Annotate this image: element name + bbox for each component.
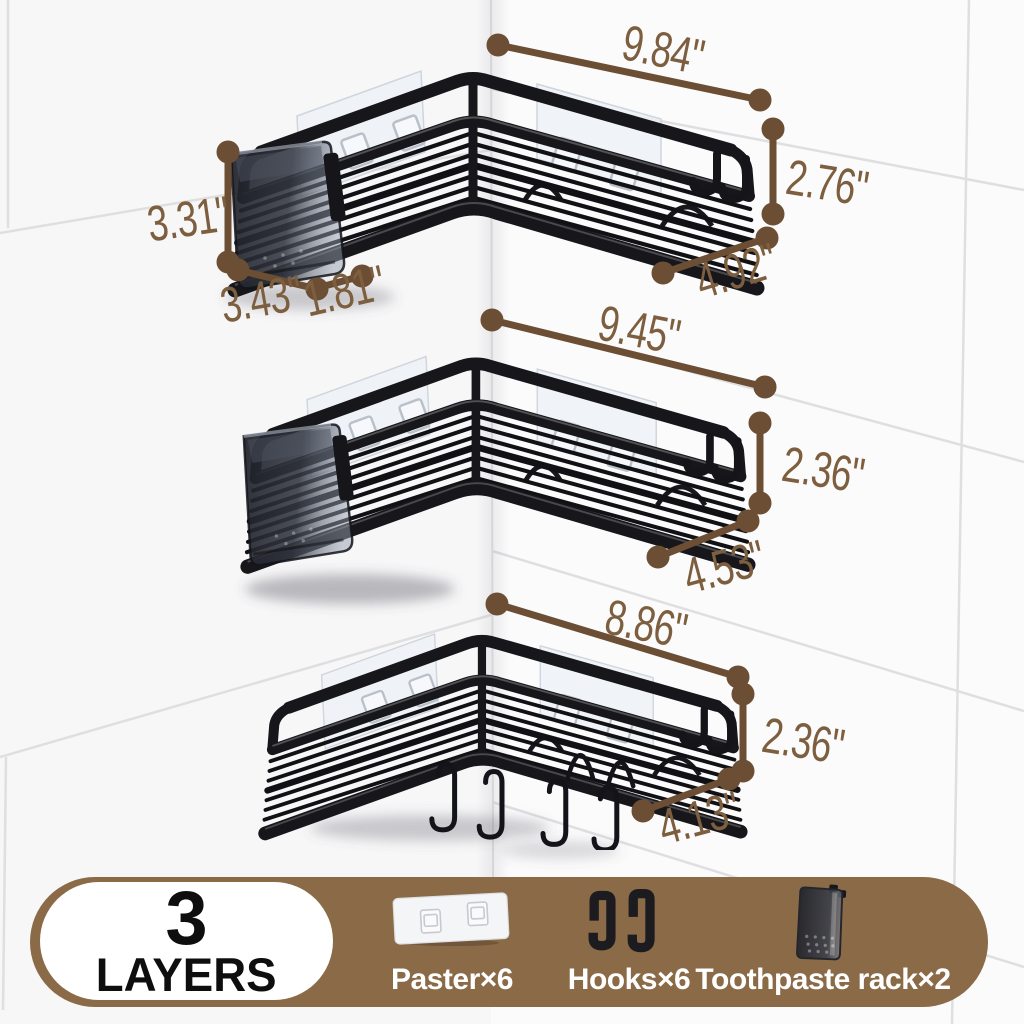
dim-label-shelf2-height: 2.36" — [778, 435, 868, 505]
layers-badge: 3 LAYERS — [40, 882, 333, 1000]
dim-label-shelf3-height: 2.36" — [758, 706, 848, 776]
dimension-lines — [0, 0, 1024, 1024]
hooks-label: Hooks×6 — [568, 963, 690, 997]
dim-line-shelf2-height — [752, 415, 768, 511]
toothpaste-rack-label: Toothpaste rack×2 — [695, 963, 950, 997]
layers-count: 3 — [165, 888, 207, 950]
dim-label-shelf1-height: 2.76" — [782, 148, 872, 218]
dim-label-cup-height: 3.31" — [144, 185, 233, 254]
dim-line-shelf3-height — [735, 686, 751, 779]
hooks-icon — [581, 889, 665, 956]
paster-label: Paster×6 — [391, 963, 513, 997]
layers-word: LAYERS — [96, 951, 277, 998]
scene: 9.84" 2.76" 4.92" 3.31" 3.43" 1.81" 9.45… — [0, 0, 1024, 1024]
dim-line-shelf1-height — [765, 121, 781, 222]
paster-icon — [390, 889, 512, 948]
toothpaste-rack-icon — [790, 882, 852, 966]
banner: 3 LAYERS Paster×6 Hooks×6 — [30, 877, 988, 1007]
